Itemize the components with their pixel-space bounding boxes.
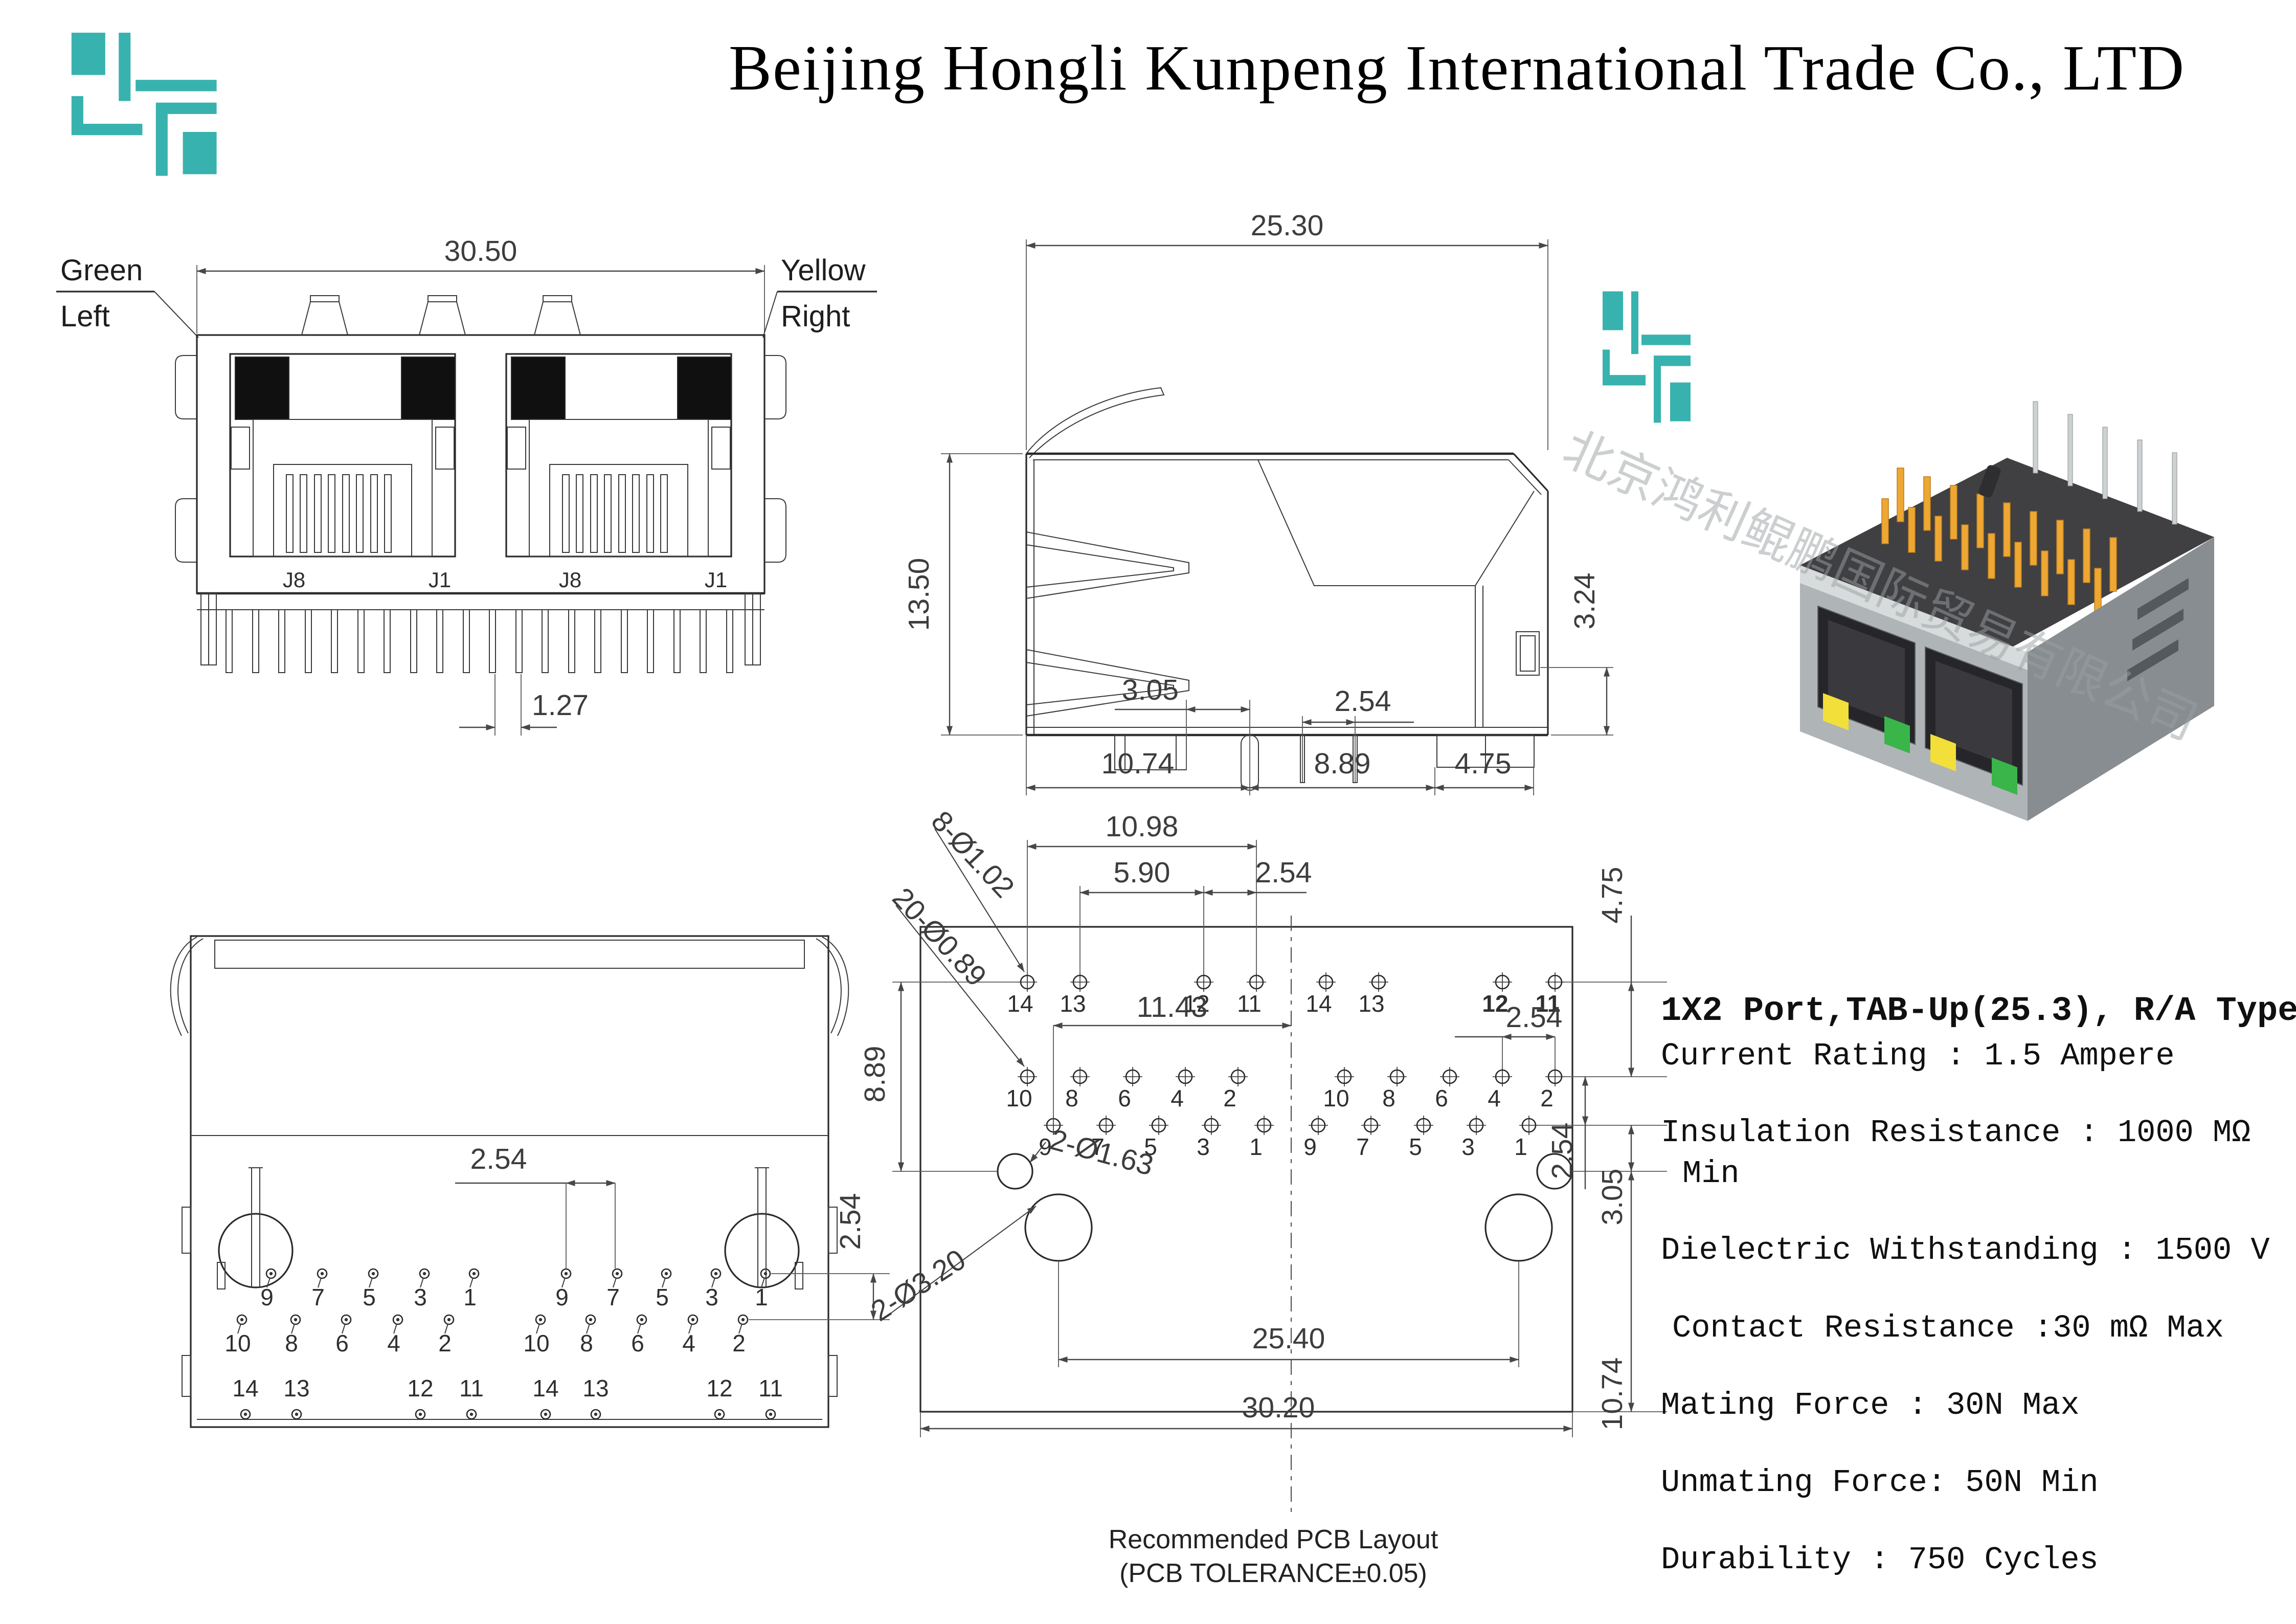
contact-fingers <box>562 475 667 552</box>
green-label: Green <box>60 254 143 287</box>
svg-text:4: 4 <box>682 1330 695 1356</box>
port-pin-label: J1 <box>429 568 451 592</box>
pcb-caption-line1: Recommended PCB Layout <box>1043 1524 1503 1555</box>
svg-text:10: 10 <box>1006 1085 1032 1111</box>
svg-text:13: 13 <box>582 1375 609 1401</box>
svg-text:25.40: 25.40 <box>1252 1322 1325 1355</box>
svg-text:8.89: 8.89 <box>859 1046 891 1103</box>
svg-text:6: 6 <box>1435 1085 1448 1111</box>
port-pin-label: J8 <box>283 568 305 592</box>
svg-text:12: 12 <box>407 1375 433 1401</box>
svg-text:1: 1 <box>1514 1133 1527 1160</box>
dim-label: 10.74 <box>1101 747 1175 780</box>
svg-text:2-Ø3.20: 2-Ø3.20 <box>865 1243 972 1328</box>
svg-text:13: 13 <box>1358 990 1384 1017</box>
svg-text:10.98: 10.98 <box>1106 810 1179 843</box>
svg-text:5: 5 <box>656 1284 669 1310</box>
front-view-body <box>175 296 786 593</box>
svg-text:13: 13 <box>1060 990 1086 1017</box>
svg-text:6: 6 <box>335 1330 349 1356</box>
front-view-drawing: 30.50 Green Left Yellow Right <box>46 220 890 798</box>
dim-label: 2.54 <box>1335 685 1391 718</box>
bottom-pin-row-even: 10 8 6 4 2 10 8 6 4 2 <box>224 1315 748 1356</box>
svg-text:5.90: 5.90 <box>1114 856 1170 889</box>
front-dim-width: 30.50 <box>197 235 764 333</box>
svg-text:11.43: 11.43 <box>1137 991 1207 1024</box>
spec-model: 1X2 Port,TAB-Up(25.3), R/A Type <box>1661 993 2296 1029</box>
spec-mating-force: Mating Force : 30N Max <box>1661 1389 2080 1422</box>
svg-text:8: 8 <box>285 1330 298 1356</box>
svg-text:9: 9 <box>260 1284 274 1310</box>
dim-label: 1.27 <box>532 689 589 722</box>
svg-text:2: 2 <box>732 1330 746 1356</box>
page-title: Beijing Hongli Kunpeng International Tra… <box>729 32 2185 105</box>
svg-text:14: 14 <box>232 1375 258 1401</box>
svg-text:4: 4 <box>1170 1085 1184 1111</box>
svg-text:10: 10 <box>224 1330 251 1356</box>
front-pin-comb <box>197 593 764 673</box>
svg-text:6: 6 <box>1118 1085 1131 1111</box>
spec-insulation-min: Min <box>1682 1157 1740 1190</box>
port-pin-label: J8 <box>559 568 581 592</box>
pcb-holes-led: 14 13 12 11 14 13 12 11 <box>1007 972 1565 1017</box>
svg-text:4: 4 <box>1488 1085 1501 1111</box>
led-window-left <box>235 357 289 419</box>
pcb-layout-drawing: 14 13 12 11 14 13 12 11 10 8 6 4 2 10 8 … <box>869 793 1667 1596</box>
bottom-dim-h: 2.54 <box>455 1143 615 1269</box>
spec-insulation-resistance: Insulation Resistance : 1000 MΩ <box>1661 1116 2250 1149</box>
svg-text:3.05: 3.05 <box>1596 1169 1629 1226</box>
svg-text:10: 10 <box>1323 1085 1349 1111</box>
spec-unmating-force: Unmating Force: 50N Min <box>1661 1466 2099 1499</box>
spec-current-rating: Current Rating : 1.5 Ampere <box>1661 1039 2175 1073</box>
dim-label: 3.05 <box>1122 674 1179 706</box>
svg-text:11: 11 <box>459 1375 484 1401</box>
pcb-dims-top: 10.98 5.90 2.54 <box>1027 810 1312 974</box>
svg-text:4.75: 4.75 <box>1596 867 1629 924</box>
pcb-holes-even: 10 8 6 4 2 10 8 6 4 2 <box>1006 1067 1565 1111</box>
svg-text:3: 3 <box>414 1284 427 1310</box>
svg-text:11: 11 <box>758 1375 783 1401</box>
svg-text:12: 12 <box>1482 990 1508 1017</box>
dim-label: 30.50 <box>444 235 517 268</box>
dim-label: 2.54 <box>470 1143 527 1175</box>
side-dim-width: 25.30 <box>1026 209 1548 450</box>
svg-text:2.54: 2.54 <box>1546 1123 1579 1180</box>
pcb-dim-left: 8.89 <box>859 982 1020 1171</box>
led-window-right <box>401 357 455 419</box>
svg-text:2.54: 2.54 <box>1506 1001 1563 1034</box>
svg-text:11: 11 <box>1237 990 1262 1017</box>
dim-label: 4.75 <box>1455 747 1512 780</box>
yellow-label: Yellow <box>781 254 866 287</box>
svg-text:8: 8 <box>1382 1085 1395 1111</box>
left-label: Left <box>60 300 110 333</box>
svg-text:10.74: 10.74 <box>1596 1358 1629 1431</box>
bottom-view-shell <box>171 936 849 1427</box>
side-view-body <box>1026 388 1548 735</box>
dim-label: 2.54 <box>834 1193 867 1250</box>
svg-text:7: 7 <box>606 1284 620 1310</box>
svg-text:10: 10 <box>523 1330 549 1356</box>
pcb-caption-line2: (PCB TOLERANCE±0.05) <box>1043 1558 1503 1589</box>
svg-text:8: 8 <box>580 1330 593 1356</box>
svg-text:14: 14 <box>1305 990 1332 1017</box>
svg-text:1: 1 <box>1249 1133 1263 1160</box>
svg-text:7: 7 <box>1356 1133 1369 1160</box>
bottom-view-drawing: 2.54 2.54 9 7 5 3 1 9 7 5 3 1 <box>153 910 900 1509</box>
dim-label: 3.24 <box>1568 573 1601 630</box>
led-window-right <box>678 357 731 419</box>
spec-dielectric: Dielectric Withstanding : 1500 V <box>1661 1234 2270 1267</box>
svg-text:3: 3 <box>705 1284 718 1310</box>
side-view-drawing: 25.30 13.50 <box>895 205 1621 818</box>
right-label: Right <box>781 300 850 333</box>
svg-text:2-Ø1.63: 2-Ø1.63 <box>1047 1123 1157 1182</box>
svg-text:2.54: 2.54 <box>1255 856 1312 889</box>
spec-durability: Durability : 750 Cycles <box>1661 1543 2099 1576</box>
side-dim-height: 13.50 <box>903 454 1023 735</box>
svg-text:6: 6 <box>631 1330 644 1356</box>
svg-text:1: 1 <box>755 1284 768 1310</box>
side-dim-tab: 3.24 <box>1540 573 1613 735</box>
front-port-1: J8 J1 <box>230 354 455 592</box>
bottom-pin-row-led: 14 13 12 11 14 13 12 11 <box>232 1375 782 1419</box>
svg-text:2: 2 <box>1223 1085 1236 1111</box>
pcb-dims-right: 4.75 2.54 3.05 10.74 <box>1537 867 1667 1431</box>
side-dim-bottom: 10.74 8.89 4.75 <box>1026 735 1534 795</box>
svg-text:4: 4 <box>387 1330 400 1356</box>
datasheet-page: Beijing Hongli Kunpeng International Tra… <box>0 0 2296 1624</box>
svg-text:20-Ø0.89: 20-Ø0.89 <box>886 881 993 992</box>
bottom-pin-row-odd: 9 7 5 3 1 9 7 5 3 1 <box>260 1269 770 1310</box>
svg-text:1: 1 <box>463 1284 477 1310</box>
dim-label: 25.30 <box>1251 209 1324 242</box>
svg-text:14: 14 <box>532 1375 558 1401</box>
svg-text:7: 7 <box>311 1284 325 1310</box>
svg-text:30.20: 30.20 <box>1242 1391 1315 1424</box>
svg-text:12: 12 <box>706 1375 732 1401</box>
svg-text:3: 3 <box>1197 1133 1210 1160</box>
company-logo-icon-small <box>1596 284 1699 433</box>
svg-text:13: 13 <box>283 1375 309 1401</box>
front-port-2: J8 J1 <box>506 354 731 592</box>
svg-text:3: 3 <box>1461 1133 1475 1160</box>
front-label-green-left: Green Left <box>56 254 198 338</box>
svg-text:2: 2 <box>438 1330 452 1356</box>
svg-text:5: 5 <box>1409 1133 1422 1160</box>
spec-contact-resistance: Contact Resistance :30 mΩ Max <box>1672 1311 2224 1345</box>
svg-text:9: 9 <box>555 1284 569 1310</box>
dim-label: 8.89 <box>1314 747 1371 780</box>
contact-fingers <box>286 475 391 552</box>
front-dim-pitch: 1.27 <box>459 674 589 736</box>
port-pin-label: J1 <box>705 568 727 592</box>
svg-text:2: 2 <box>1540 1085 1554 1111</box>
dim-label: 13.50 <box>903 558 935 631</box>
svg-text:5: 5 <box>363 1284 376 1310</box>
led-window-left <box>511 357 565 419</box>
svg-text:9: 9 <box>1303 1133 1317 1160</box>
svg-text:8: 8 <box>1065 1085 1078 1111</box>
svg-text:14: 14 <box>1007 990 1033 1017</box>
company-logo-icon <box>61 25 230 187</box>
front-label-yellow-right: Yellow Right <box>763 254 877 338</box>
